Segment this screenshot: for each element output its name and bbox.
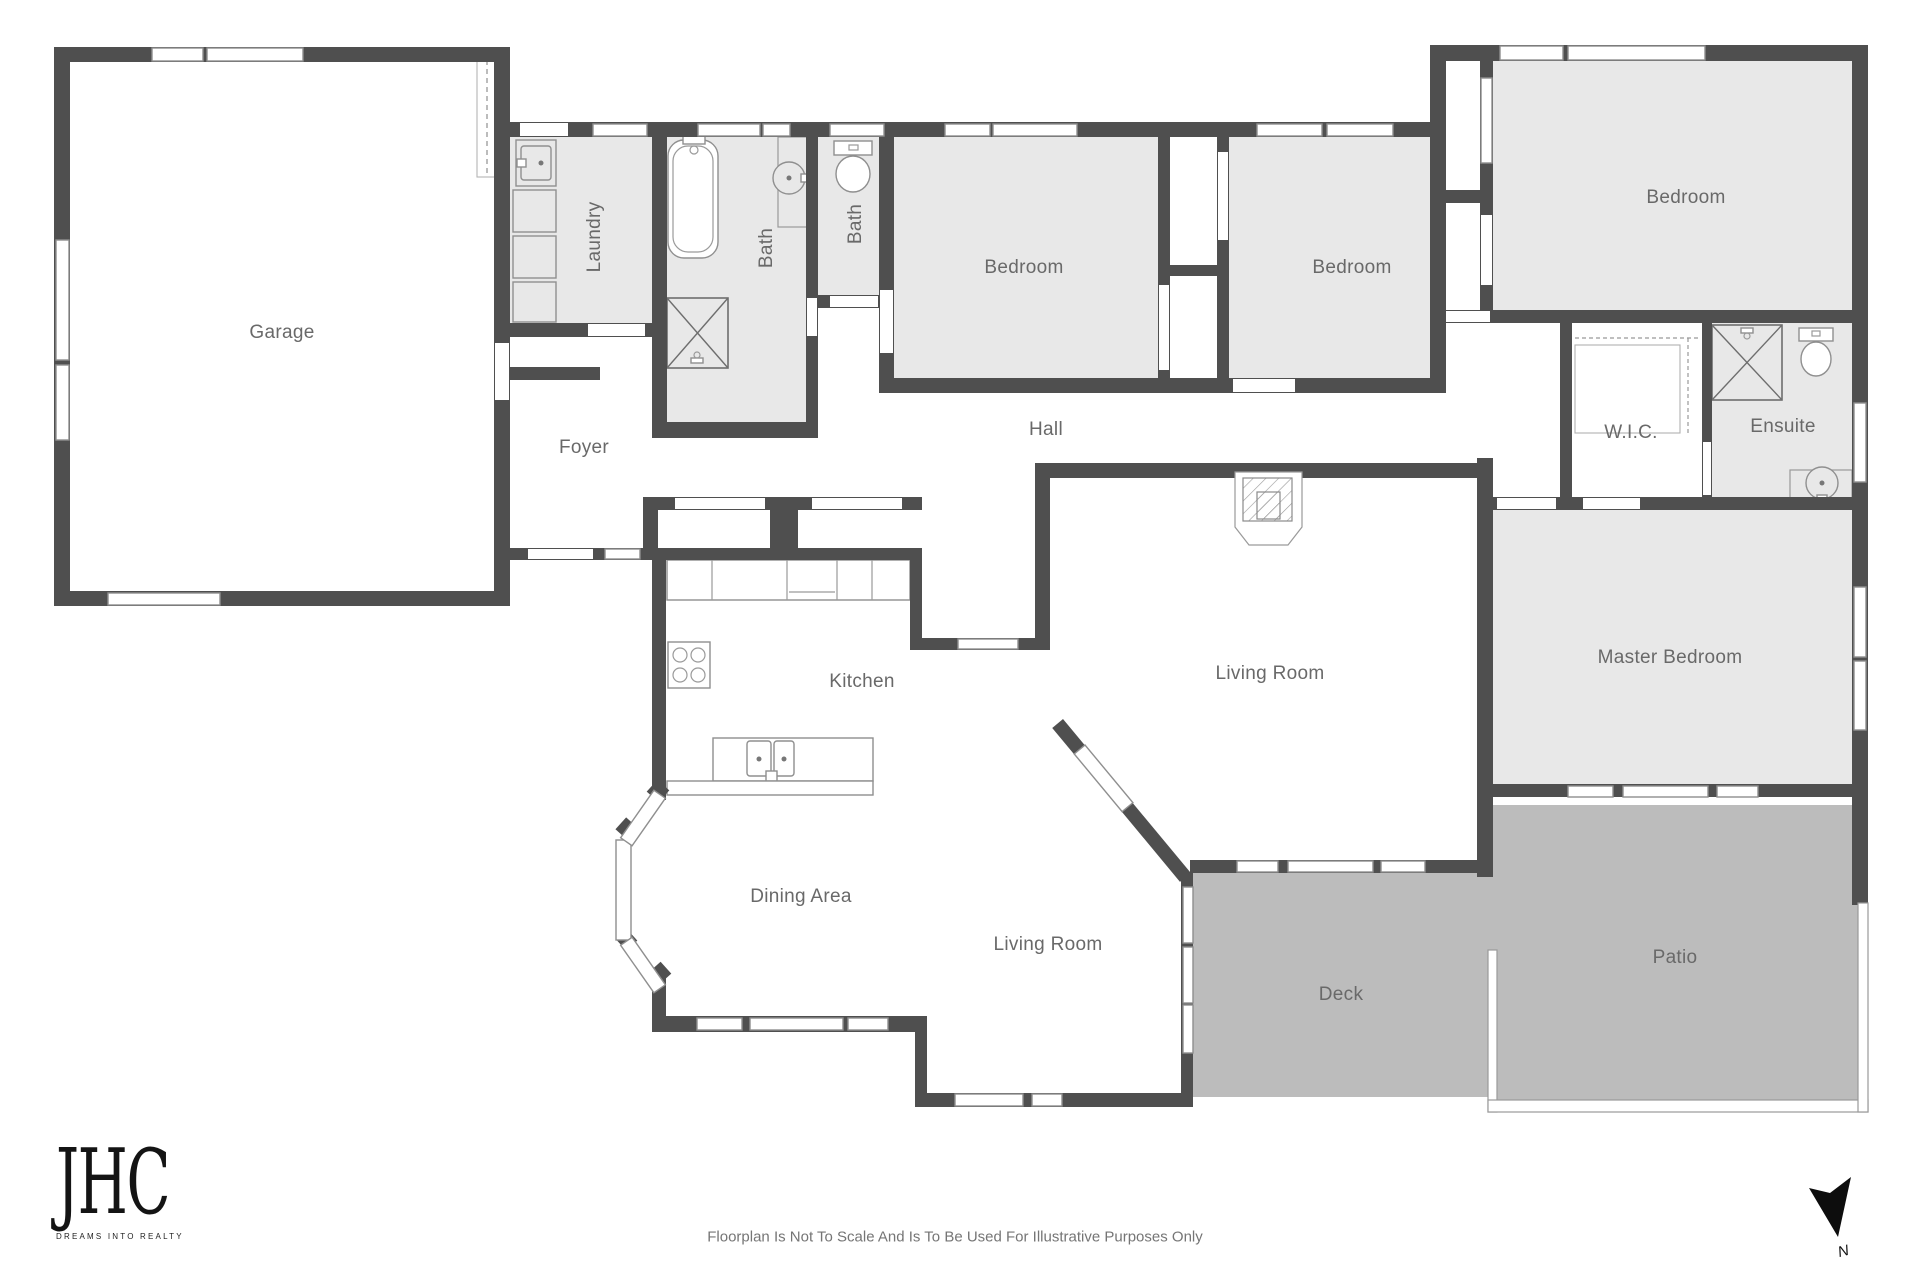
room-label-living-room-1: Living Room bbox=[1216, 663, 1325, 685]
room-label-hall: Hall bbox=[1029, 419, 1063, 441]
kitchen-counter bbox=[667, 560, 910, 600]
fireplace-icon bbox=[1235, 472, 1302, 545]
room-label-bath-2: Bath bbox=[845, 204, 867, 244]
room-label-bedroom-1: Bedroom bbox=[984, 257, 1063, 279]
floorplan-page: Garage Laundry Bath Bath Bedroom Bedroom… bbox=[0, 0, 1920, 1280]
room-label-living-room-2: Living Room bbox=[994, 934, 1103, 956]
floorplan-drawing bbox=[0, 0, 1920, 1280]
toilet-icon bbox=[834, 141, 872, 192]
closet-shelving bbox=[1575, 338, 1698, 433]
ensuite-toilet-icon bbox=[1799, 328, 1833, 376]
washer-icon bbox=[516, 140, 556, 186]
room-label-foyer: Foyer bbox=[559, 437, 609, 459]
ensuite-shower-icon bbox=[1712, 325, 1782, 400]
stove-icon bbox=[668, 642, 710, 688]
room-label-bedroom-3: Bedroom bbox=[1646, 187, 1725, 209]
island-sink-icon bbox=[667, 738, 873, 795]
room-label-dining-area: Dining Area bbox=[750, 886, 852, 908]
room-label-laundry: Laundry bbox=[584, 202, 606, 273]
room-label-kitchen: Kitchen bbox=[829, 671, 894, 693]
room-label-ensuite: Ensuite bbox=[1750, 416, 1815, 438]
disclaimer-text: Floorplan Is Not To Scale And Is To Be U… bbox=[707, 1229, 1203, 1246]
agency-logo: JHC DREAMS INTO REALTY bbox=[56, 1138, 176, 1241]
laundry-cabinets bbox=[513, 190, 556, 322]
bathtub-icon bbox=[668, 136, 718, 258]
shower-icon bbox=[667, 298, 728, 368]
room-label-garage: Garage bbox=[249, 322, 314, 344]
room-label-master-bedroom: Master Bedroom bbox=[1598, 647, 1743, 669]
room-label-bath-1: Bath bbox=[756, 228, 778, 268]
agency-logo-text: JHC bbox=[56, 1138, 169, 1228]
room-label-bedroom-2: Bedroom bbox=[1312, 257, 1391, 279]
room-label-patio: Patio bbox=[1653, 947, 1698, 969]
north-arrow-icon bbox=[1809, 1177, 1851, 1237]
room-label-wic: W.I.C. bbox=[1604, 422, 1658, 444]
room-label-deck: Deck bbox=[1319, 984, 1364, 1006]
